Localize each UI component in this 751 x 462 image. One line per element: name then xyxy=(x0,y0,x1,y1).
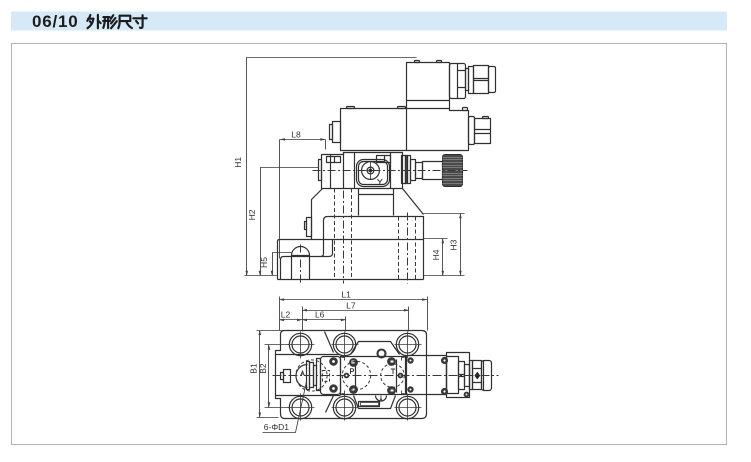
svg-text:L1: L1 xyxy=(341,290,351,300)
svg-text:H1: H1 xyxy=(233,157,243,168)
svg-text:L2: L2 xyxy=(281,310,291,320)
svg-text:H3: H3 xyxy=(448,239,458,250)
svg-text:06/10: 06/10 xyxy=(32,12,79,31)
svg-text:L6: L6 xyxy=(315,310,325,320)
svg-text:B1: B1 xyxy=(249,363,259,374)
svg-text:H4: H4 xyxy=(431,249,441,260)
svg-text:L8: L8 xyxy=(291,130,301,140)
svg-text:H5: H5 xyxy=(259,257,269,268)
svg-text:L7: L7 xyxy=(346,301,356,311)
svg-text:H2: H2 xyxy=(247,209,257,220)
svg-text:6-ΦD1: 6-ΦD1 xyxy=(264,422,289,432)
